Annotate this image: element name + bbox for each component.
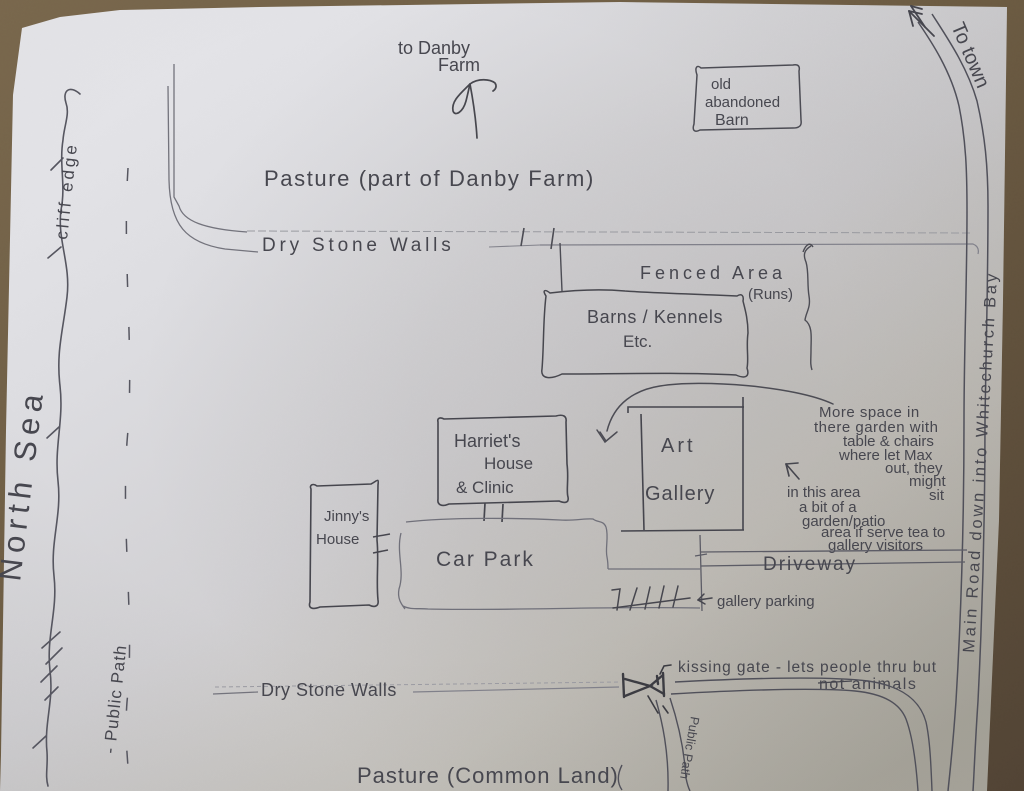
svg-text:abandoned: abandoned [705,94,780,111]
svg-text:Car Park: Car Park [436,548,535,571]
svg-text:House: House [484,454,533,473]
svg-text:Barn: Barn [715,112,749,129]
svg-text:Barns / Kennels: Barns / Kennels [587,307,723,327]
svg-text:Dry Stone Walls: Dry Stone Walls [261,680,397,700]
svg-text:Farm: Farm [438,55,480,75]
svg-text:Dry Stone Walls: Dry Stone Walls [262,235,455,256]
svg-text:Fenced Area: Fenced Area [640,263,786,283]
svg-text:kissing gate - lets people thr: kissing gate - lets people thru but [678,659,937,676]
svg-text:sit: sit [929,487,945,504]
svg-text:Pasture (part of Danby Farm): Pasture (part of Danby Farm) [264,166,595,191]
svg-text:old: old [711,76,731,93]
svg-text:Gallery: Gallery [645,483,715,505]
svg-text:& Clinic: & Clinic [456,478,514,497]
svg-text:Etc.: Etc. [623,332,652,351]
svg-text:Driveway: Driveway [763,554,857,575]
svg-text:Pasture (Common Land): Pasture (Common Land) [357,763,619,788]
svg-text:House: House [316,531,359,548]
svg-text:Art: Art [661,435,696,457]
svg-text:Harriet's: Harriet's [454,431,520,451]
svg-text:gallery parking: gallery parking [717,593,815,610]
svg-text:Jinny's: Jinny's [324,508,369,525]
svg-text:(Runs): (Runs) [748,286,793,303]
